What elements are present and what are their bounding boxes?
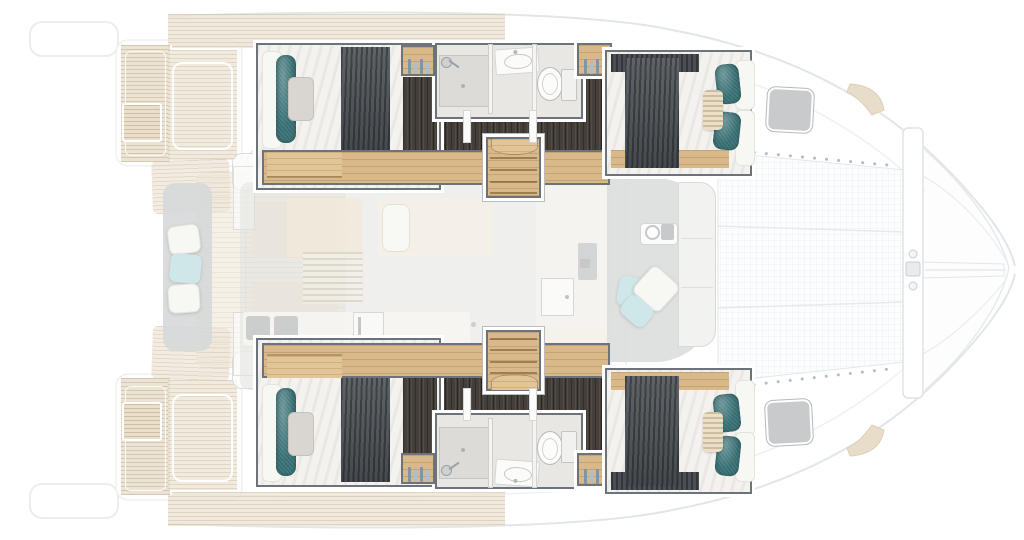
- stbd-fwd-duvet: [625, 376, 679, 486]
- port-fwd-cabin: [605, 50, 752, 176]
- port-fwd-duvet: [625, 58, 679, 168]
- counter-fitting: [471, 322, 476, 327]
- port-stairs: [486, 137, 541, 198]
- stbd-fwd-cabin: [605, 368, 752, 494]
- salon-daybed: [378, 198, 492, 257]
- stern-locker-outline-stbd: [30, 484, 118, 518]
- forward-door-panel: [541, 278, 574, 316]
- port-bath-door-2: [529, 110, 537, 143]
- port-aft-dressing-floor: [403, 77, 437, 152]
- stern-locker-outline-port: [30, 22, 118, 56]
- stbd-bottle-locker-aft: [401, 453, 435, 484]
- toilet-bowl: [537, 431, 563, 465]
- port-bathroom: [435, 43, 583, 119]
- stbd-shelf-band: [262, 343, 610, 378]
- beam-fitting-2: [906, 262, 920, 276]
- transom-step-stbd: [122, 402, 162, 441]
- stbd-bed-step: [267, 354, 342, 378]
- transom-trim: [172, 394, 233, 482]
- transom-deck-port: [168, 50, 237, 160]
- toilet-seat: [542, 73, 558, 95]
- deck-hatch-port: [766, 87, 814, 133]
- bow-pad-port: [847, 84, 884, 115]
- galley-sink-left: [246, 316, 270, 340]
- toilet-seat: [542, 438, 558, 460]
- galley-stove: [274, 316, 298, 340]
- beam-fitting-1: [909, 250, 917, 258]
- stbd-aft-duvet: [341, 378, 390, 482]
- port-aft-duvet: [341, 47, 390, 151]
- stbd-stairs: [486, 330, 541, 391]
- bath-partition: [533, 45, 536, 113]
- door-handle: [565, 295, 569, 299]
- door-mullion: [578, 243, 597, 280]
- beam-fitting-3: [909, 282, 917, 290]
- deck-hatch-stbd: [765, 399, 813, 446]
- fridge-handle: [358, 317, 361, 337]
- daybed-pillow: [382, 204, 410, 252]
- sink-basin: [503, 466, 532, 483]
- forward-bench: [678, 182, 716, 347]
- side-deck-stbd: [168, 492, 505, 526]
- toilet-tank: [561, 69, 577, 101]
- shower-drain: [461, 84, 465, 88]
- windlass-drum: [645, 225, 660, 240]
- trampoline-mesh: [718, 152, 905, 382]
- port-bed-step: [267, 152, 342, 178]
- shower-drain: [461, 448, 465, 452]
- sink-basin: [504, 53, 533, 70]
- stbd-aft-pillow-gray: [288, 412, 314, 456]
- toilet-bowl: [537, 67, 563, 101]
- stbd-bathroom: [435, 413, 583, 489]
- bench-cushion-blue: [169, 252, 203, 284]
- door-latch: [580, 259, 590, 268]
- port-bath-door-1: [463, 110, 471, 143]
- port-bottle-locker-aft: [401, 45, 435, 76]
- port-shelf-band: [262, 150, 610, 185]
- stbd-aft-dressing-floor: [403, 378, 437, 453]
- windlass-motor: [661, 224, 674, 240]
- fwd-pillow-striped: [703, 412, 723, 452]
- bow-pad-stbd: [847, 425, 884, 456]
- shower-glass: [489, 45, 492, 113]
- sink-faucet: [513, 479, 517, 483]
- toilet-tank: [561, 431, 577, 463]
- port-aft-pillow-gray: [288, 77, 314, 121]
- bath-partition: [533, 419, 536, 487]
- louvered-locker: [303, 252, 363, 304]
- transom-deck-stbd: [168, 380, 237, 490]
- shower-glass: [489, 419, 492, 487]
- transom-trim: [172, 62, 233, 150]
- stbd-bath-door-1: [463, 388, 471, 421]
- transom-step-port: [122, 103, 162, 142]
- bench-cushion-white-2: [167, 283, 201, 314]
- salon-seat-block: [287, 198, 362, 257]
- bench-cushion-white-1: [166, 223, 202, 256]
- stbd-bath-door-2: [529, 388, 537, 421]
- fwd-pillow-striped: [703, 90, 723, 130]
- catamaran-floorplan: [0, 0, 1024, 540]
